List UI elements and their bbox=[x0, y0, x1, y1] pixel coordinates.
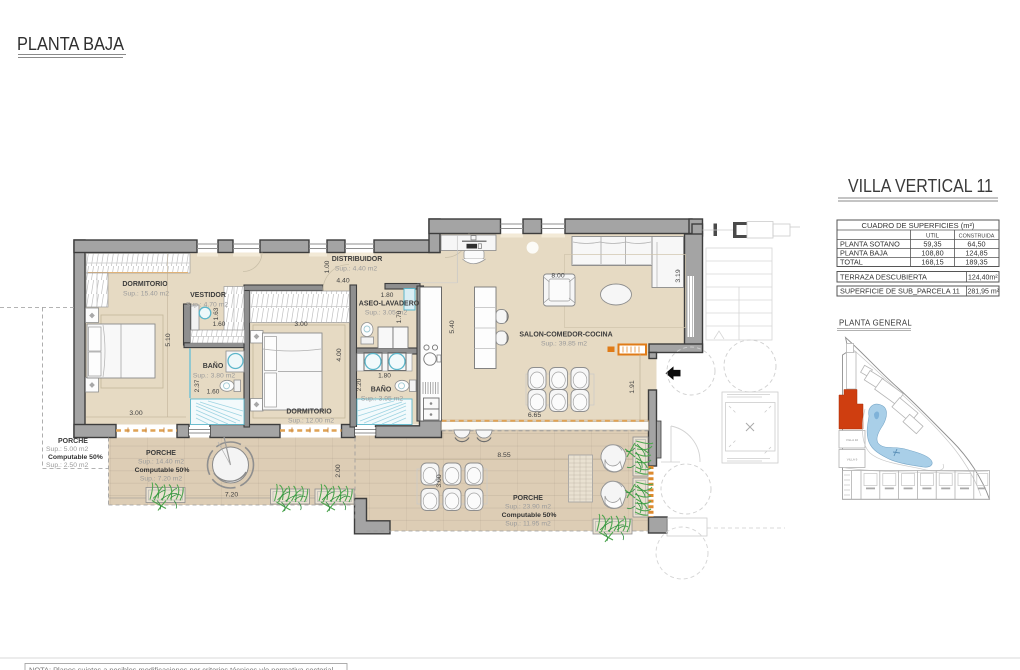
svg-text:NOTA: Planos sujetos a posible: NOTA: Planos sujetos a posibles modifica… bbox=[29, 666, 334, 670]
svg-text:1.80: 1.80 bbox=[381, 292, 394, 299]
svg-text:Sup.: 14.40 m2: Sup.: 14.40 m2 bbox=[138, 459, 184, 466]
svg-text:Sup.: 3.80 m2: Sup.: 3.80 m2 bbox=[193, 373, 236, 380]
svg-text:VILLA 9: VILLA 9 bbox=[847, 458, 858, 462]
svg-text:Sup.: 4.70 m2: Sup.: 4.70 m2 bbox=[186, 302, 229, 309]
svg-text:3.00: 3.00 bbox=[129, 410, 142, 417]
svg-text:Sup.: 2.50 m2: Sup.: 2.50 m2 bbox=[46, 462, 89, 469]
svg-text:PORCHE: PORCHE bbox=[513, 495, 543, 502]
svg-text:2.20: 2.20 bbox=[356, 378, 363, 391]
svg-text:Sup.: 7.20 m2: Sup.: 7.20 m2 bbox=[140, 476, 183, 483]
svg-text:PLANTA SOTANO: PLANTA SOTANO bbox=[840, 240, 900, 249]
svg-text:BAÑO: BAÑO bbox=[203, 361, 224, 370]
svg-text:3.00: 3.00 bbox=[436, 474, 443, 487]
svg-text:VILLA 10: VILLA 10 bbox=[846, 438, 859, 442]
svg-text:124,40m²: 124,40m² bbox=[968, 275, 998, 282]
svg-text:BAÑO: BAÑO bbox=[371, 385, 392, 394]
svg-text:8.00: 8.00 bbox=[551, 273, 564, 280]
svg-text:Computable 50%: Computable 50% bbox=[502, 512, 557, 519]
svg-text:8.55: 8.55 bbox=[497, 452, 510, 459]
svg-text:Sup.: 23.90 m2: Sup.: 23.90 m2 bbox=[505, 504, 551, 511]
svg-text:1.91: 1.91 bbox=[629, 380, 636, 393]
svg-text:Computable 50%: Computable 50% bbox=[135, 467, 190, 474]
svg-text:1.63: 1.63 bbox=[213, 307, 220, 320]
svg-text:Sup.: 15.40 m2: Sup.: 15.40 m2 bbox=[123, 291, 169, 298]
svg-text:CUADRO DE SUPERFICIES (m²): CUADRO DE SUPERFICIES (m²) bbox=[862, 221, 975, 230]
svg-text:TOTAL: TOTAL bbox=[840, 258, 863, 267]
svg-text:3.00: 3.00 bbox=[294, 321, 307, 328]
svg-text:Sup.: 3.95 m2: Sup.: 3.95 m2 bbox=[361, 396, 404, 403]
svg-text:64,50: 64,50 bbox=[967, 240, 985, 249]
svg-text:1.70: 1.70 bbox=[396, 310, 403, 323]
svg-text:59,35: 59,35 bbox=[923, 240, 941, 249]
svg-text:PLANTA BAJA: PLANTA BAJA bbox=[840, 249, 888, 258]
svg-text:Sup.: 12.00 m2: Sup.: 12.00 m2 bbox=[288, 418, 334, 425]
svg-text:124,85: 124,85 bbox=[965, 249, 987, 258]
svg-text:VILLA VERTICAL 11: VILLA VERTICAL 11 bbox=[848, 175, 993, 196]
svg-text:7.20: 7.20 bbox=[225, 492, 238, 499]
svg-text:DISTRIBUIDOR: DISTRIBUIDOR bbox=[332, 256, 383, 263]
svg-text:SUPERFICIE DE SUB_PARCELA 11: SUPERFICIE DE SUB_PARCELA 11 bbox=[840, 287, 960, 296]
svg-text:VESTIDOR: VESTIDOR bbox=[190, 292, 226, 299]
svg-text:PLANTA BAJA: PLANTA BAJA bbox=[17, 33, 125, 54]
svg-text:108,80: 108,80 bbox=[921, 249, 943, 258]
svg-text:1.00: 1.00 bbox=[324, 260, 331, 273]
svg-text:PLANTA GENERAL: PLANTA GENERAL bbox=[839, 319, 912, 328]
svg-text:1.60: 1.60 bbox=[213, 321, 226, 328]
svg-text:DORMITORIO: DORMITORIO bbox=[122, 281, 168, 288]
svg-text:189,35: 189,35 bbox=[965, 258, 987, 267]
svg-text:DORMITORIO: DORMITORIO bbox=[286, 409, 332, 416]
svg-text:5.10: 5.10 bbox=[165, 333, 172, 346]
svg-text:3.19: 3.19 bbox=[675, 269, 682, 282]
svg-text:ASEO-LAVADERO: ASEO-LAVADERO bbox=[359, 301, 420, 308]
svg-text:4.00: 4.00 bbox=[336, 348, 343, 361]
svg-text:Sup.: 39.85 m2: Sup.: 39.85 m2 bbox=[541, 341, 587, 348]
svg-text:SALON-COMEDOR-COCINA: SALON-COMEDOR-COCINA bbox=[519, 332, 612, 339]
svg-text:2.00: 2.00 bbox=[335, 464, 342, 477]
svg-text:5.40: 5.40 bbox=[449, 320, 456, 333]
svg-text:2.37: 2.37 bbox=[194, 379, 201, 392]
svg-text:6.65: 6.65 bbox=[528, 412, 541, 419]
svg-text:Computable 50%: Computable 50% bbox=[48, 454, 103, 461]
svg-text:TERRAZA DESCUBIERTA: TERRAZA DESCUBIERTA bbox=[840, 273, 927, 282]
svg-text:Sup.: 4.40 m2: Sup.: 4.40 m2 bbox=[335, 266, 378, 273]
svg-text:Sup.: 11.95 m2: Sup.: 11.95 m2 bbox=[505, 521, 551, 528]
svg-text:PORCHE: PORCHE bbox=[58, 438, 88, 445]
svg-text:168,15: 168,15 bbox=[921, 258, 943, 267]
svg-text:1.60: 1.60 bbox=[207, 389, 220, 396]
svg-text:Sup.: 5.00 m2: Sup.: 5.00 m2 bbox=[46, 446, 89, 453]
svg-text:4.40: 4.40 bbox=[336, 278, 349, 285]
svg-text:1.80: 1.80 bbox=[378, 373, 391, 380]
svg-text:281,95 m²: 281,95 m² bbox=[968, 289, 1000, 296]
svg-text:PORCHE: PORCHE bbox=[146, 450, 176, 457]
